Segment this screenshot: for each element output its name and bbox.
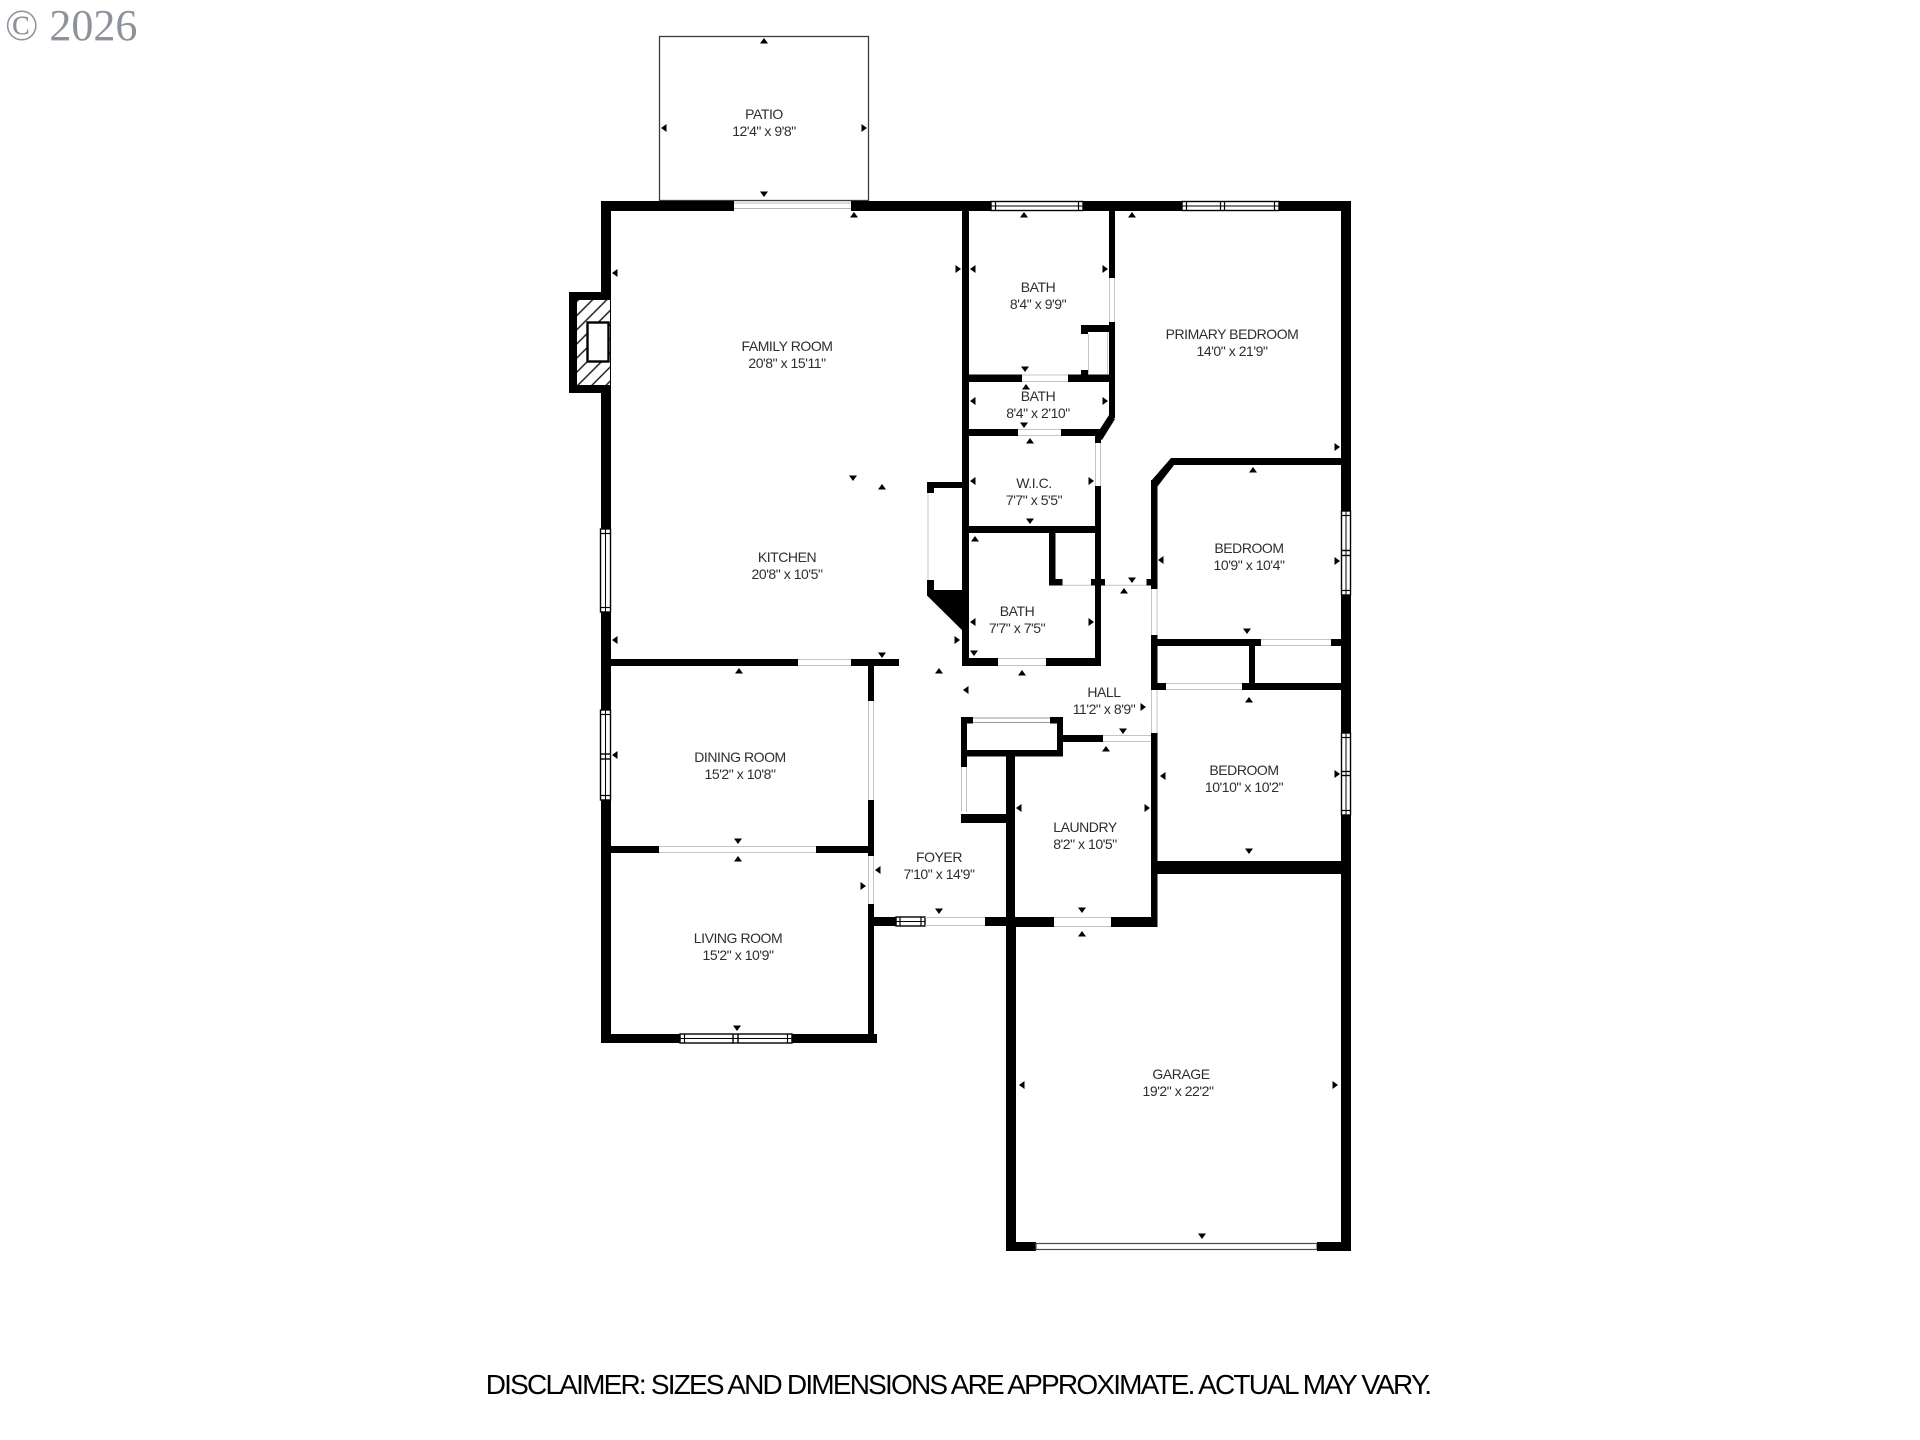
svg-text:8'4" x 2'10": 8'4" x 2'10" — [1006, 405, 1070, 421]
svg-text:DINING ROOM: DINING ROOM — [694, 749, 786, 765]
svg-text:BATH: BATH — [1000, 603, 1035, 619]
svg-text:8'2" x 10'5": 8'2" x 10'5" — [1053, 836, 1117, 852]
svg-text:LIVING ROOM: LIVING ROOM — [694, 930, 782, 946]
svg-text:15'2" x 10'8": 15'2" x 10'8" — [705, 766, 776, 782]
svg-text:HALL: HALL — [1087, 684, 1121, 700]
svg-text:BEDROOM: BEDROOM — [1209, 762, 1278, 778]
svg-text:© 2026: © 2026 — [5, 1, 137, 50]
svg-text:20'8" x 10'5": 20'8" x 10'5" — [752, 566, 823, 582]
svg-text:FOYER: FOYER — [916, 849, 962, 865]
svg-text:GARAGE: GARAGE — [1152, 1066, 1209, 1082]
svg-text:LAUNDRY: LAUNDRY — [1053, 819, 1118, 835]
svg-text:12'4" x 9'8": 12'4" x 9'8" — [732, 123, 796, 139]
svg-text:20'8" x 15'11": 20'8" x 15'11" — [748, 355, 826, 371]
svg-text:15'2" x 10'9": 15'2" x 10'9" — [703, 947, 774, 963]
svg-text:7'7" x 7'5": 7'7" x 7'5" — [989, 620, 1046, 636]
svg-text:BEDROOM: BEDROOM — [1214, 540, 1283, 556]
svg-text:W.I.C.: W.I.C. — [1016, 475, 1051, 491]
svg-text:10'9" x 10'4": 10'9" x 10'4" — [1214, 557, 1285, 573]
svg-text:19'2" x 22'2": 19'2" x 22'2" — [1143, 1083, 1214, 1099]
svg-text:10'10" x 10'2": 10'10" x 10'2" — [1205, 779, 1284, 795]
svg-text:7'7" x 5'5": 7'7" x 5'5" — [1006, 492, 1063, 508]
svg-text:DISCLAIMER: SIZES AND DIMENSIO: DISCLAIMER: SIZES AND DIMENSIONS ARE APP… — [486, 1369, 1430, 1400]
svg-text:BATH: BATH — [1021, 279, 1056, 295]
svg-text:14'0" x 21'9": 14'0" x 21'9" — [1197, 343, 1268, 359]
svg-text:7'10" x 14'9": 7'10" x 14'9" — [904, 866, 975, 882]
svg-text:BATH: BATH — [1021, 388, 1056, 404]
svg-text:KITCHEN: KITCHEN — [758, 549, 816, 565]
svg-text:FAMILY ROOM: FAMILY ROOM — [742, 338, 833, 354]
svg-text:11'2" x 8'9": 11'2" x 8'9" — [1073, 701, 1136, 717]
svg-text:PATIO: PATIO — [745, 106, 783, 122]
svg-text:PRIMARY BEDROOM: PRIMARY BEDROOM — [1166, 326, 1299, 342]
svg-text:8'4" x 9'9": 8'4" x 9'9" — [1010, 296, 1067, 312]
